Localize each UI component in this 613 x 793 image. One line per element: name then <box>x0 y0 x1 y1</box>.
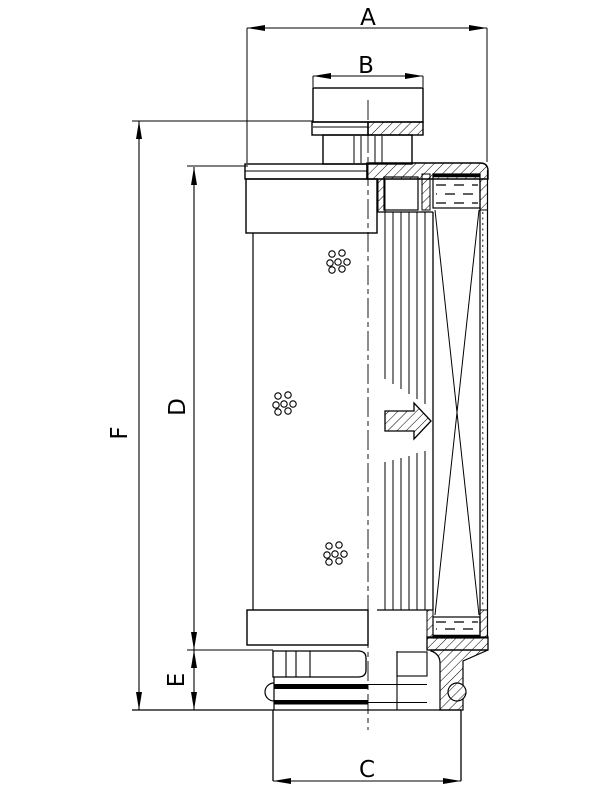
dimension-label-c: C <box>359 757 375 783</box>
support-mesh-cross <box>435 210 479 615</box>
dimension-label-f: F <box>107 426 133 439</box>
bottom-seal-bed <box>433 617 480 638</box>
oring-bulge <box>265 683 274 701</box>
perforation-hole-cluster <box>324 542 347 565</box>
perforation-hole-cluster <box>327 250 350 273</box>
bottom-outlet-pipe <box>132 710 461 781</box>
dimension-f: F <box>107 121 313 710</box>
bottom-adapter <box>265 650 488 710</box>
dimension-b: B <box>313 53 423 87</box>
bottom-end-cap-section <box>377 610 488 650</box>
castellation-ring <box>273 651 366 677</box>
flow-direction-arrow-icon <box>385 403 431 439</box>
dimension-d: D <box>165 166 248 650</box>
dimension-label-d: D <box>165 398 191 416</box>
outer-support-tube <box>480 170 488 638</box>
dimension-c: C <box>273 757 461 784</box>
top-port <box>312 88 423 164</box>
dimension-label-a: A <box>360 5 376 31</box>
dimension-label-e: E <box>164 673 190 688</box>
drawing-canvas: A B C D E F <box>0 0 613 793</box>
dimension-label-b: B <box>358 53 374 79</box>
filter-element-technical-drawing: A B C D E F <box>0 0 613 793</box>
seal-band <box>274 700 368 705</box>
bottom-flange <box>427 637 488 650</box>
perforation-hole-cluster <box>273 392 296 415</box>
seal-band <box>274 684 368 689</box>
dimension-e: E <box>164 650 273 710</box>
bottom-end-cap <box>247 610 368 645</box>
port-neck <box>323 135 412 164</box>
dimension-a: A <box>247 5 487 163</box>
top-end-cap <box>246 179 377 233</box>
